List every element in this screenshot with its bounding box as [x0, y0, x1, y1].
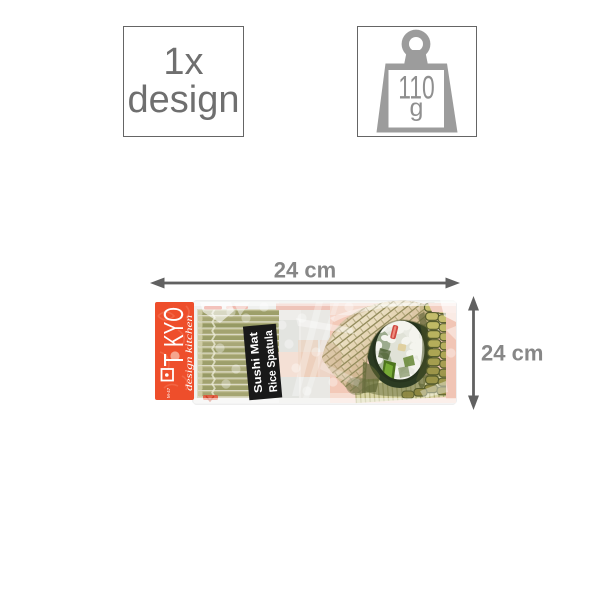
svg-text:24 cm: 24 cm: [274, 258, 336, 283]
svg-text:design kitchen: design kitchen: [185, 315, 195, 391]
svg-text:g: g: [410, 94, 424, 122]
svg-text:24 cm: 24 cm: [481, 341, 543, 366]
svg-text:M-47: M-47: [166, 387, 171, 398]
